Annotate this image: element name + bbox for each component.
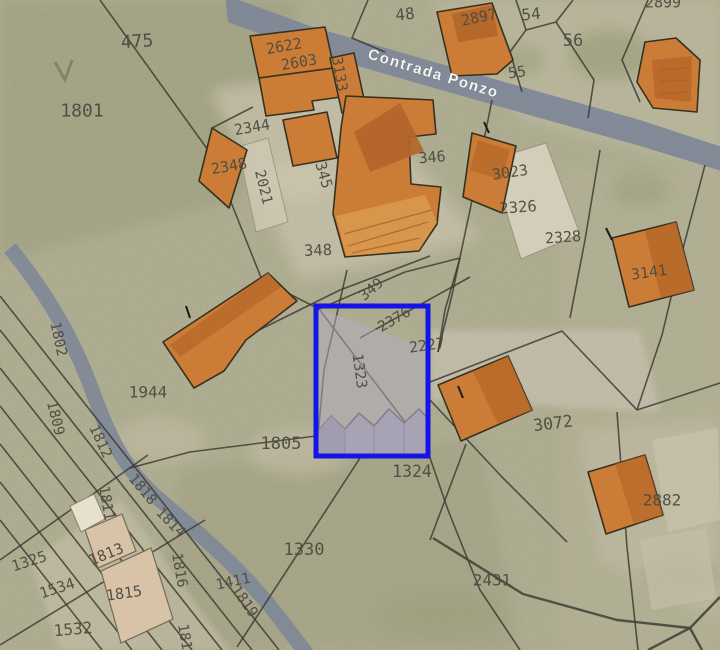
parcel-label-346: 346 (418, 147, 447, 167)
parcel-label-1805: 1805 (261, 434, 302, 454)
parcel-label-1330: 1330 (284, 540, 325, 560)
parcel-label-2899: 2899 (645, 0, 681, 11)
pale-roof-right-lower (640, 528, 716, 610)
building-345-area (283, 112, 337, 166)
parcel-label-1801: 1801 (60, 100, 103, 121)
parcel-label-2328: 2328 (544, 227, 581, 247)
cadastral-map[interactable]: 4751801482897542899555626222603313323442… (0, 0, 720, 650)
parcel-label-2431: 2431 (473, 571, 512, 590)
parcel-label-2882: 2882 (643, 491, 682, 510)
parcel-label-1944: 1944 (129, 383, 168, 402)
parcel-label-56: 56 (563, 31, 583, 51)
parcel-label-1324: 1324 (392, 462, 432, 481)
cadastral-map-viewport[interactable]: 4751801482897542899555626222603313323442… (0, 0, 720, 650)
parcel-label-54: 54 (520, 4, 541, 25)
parcel-label-48: 48 (394, 4, 415, 25)
parcel-label-475: 475 (120, 30, 154, 53)
parcel-label-348: 348 (304, 241, 333, 260)
parcel-label-55: 55 (507, 62, 527, 82)
parcel-label-1532: 1532 (53, 618, 93, 640)
parcel-label-2326: 2326 (499, 197, 537, 218)
